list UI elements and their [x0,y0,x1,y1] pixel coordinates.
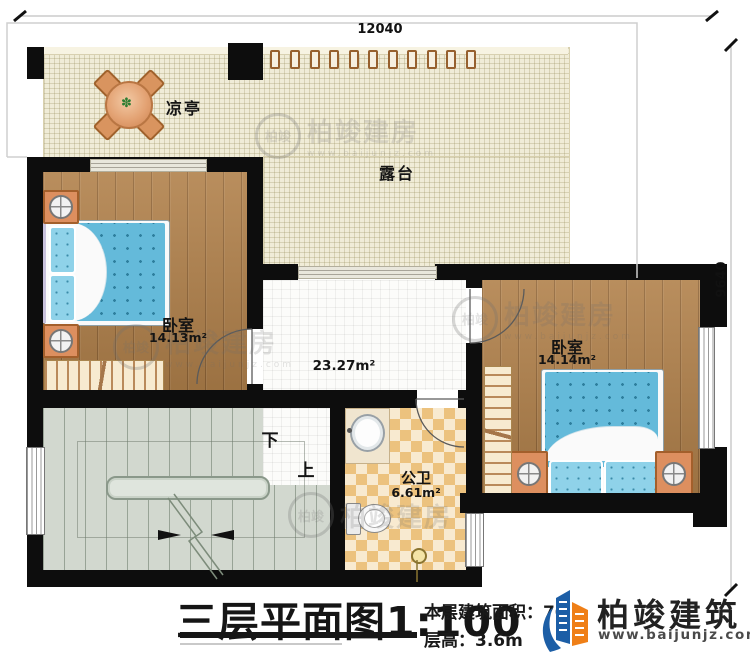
bathroom-area: 6.61m² [390,485,442,500]
linework-overlay [0,0,750,656]
floor-height-text: 层高：3.6m [424,626,523,651]
stairs-up-label: 上 [294,456,318,481]
dimension-right: 9640 [715,250,730,310]
brand-logo-icon [540,586,596,654]
stairs-break-line [168,494,223,579]
brand-website: www.baijunjz.com [598,627,750,643]
title-underline-thin [180,643,342,645]
hall-area: 23.27m² [308,358,380,374]
pavilion-label: 凉亭 [160,95,208,119]
terrace-label: 露台 [373,160,421,184]
dimension-top: 12040 [330,22,430,37]
bedroom-right-area: 14.14m² [534,352,600,367]
floor-plan: ✽ [0,0,750,656]
dimension-ticks [14,11,737,596]
title-underline [180,632,417,638]
stairs-down-label: 下 [258,426,282,451]
bedroom-left-area: 14.13m² [145,330,211,345]
lower-floor-outline [7,23,637,278]
dimension-lines [20,16,731,590]
